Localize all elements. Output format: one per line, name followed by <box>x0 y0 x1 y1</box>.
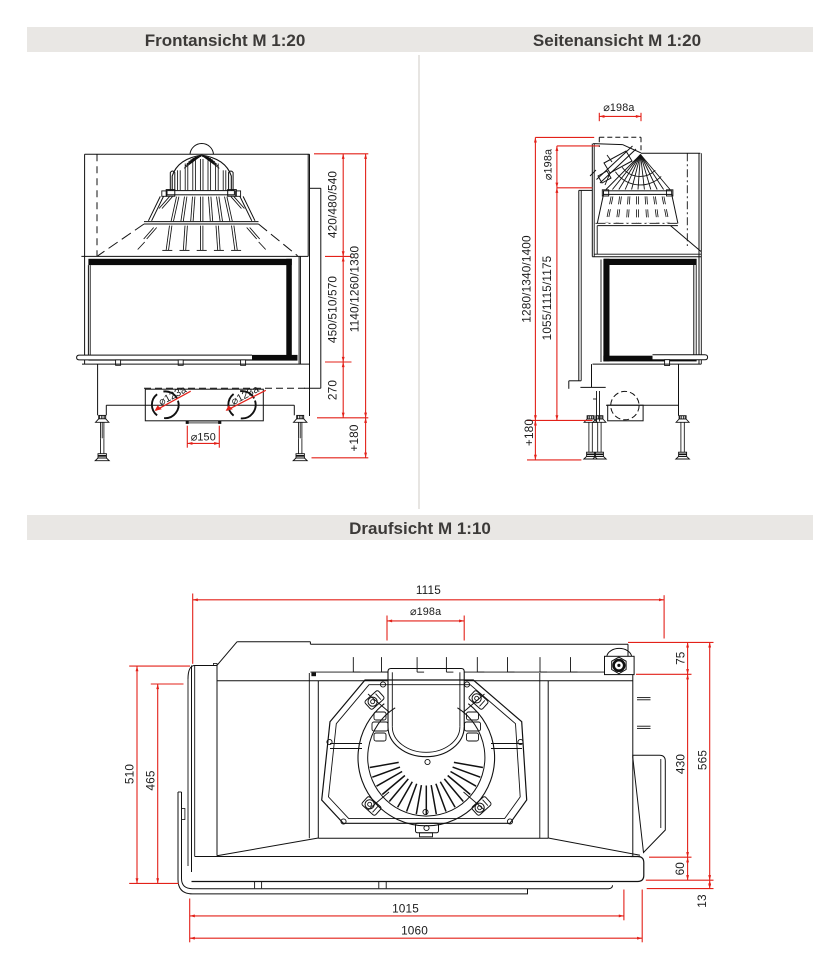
svg-text:1060: 1060 <box>401 924 428 938</box>
svg-text:+180: +180 <box>347 424 361 451</box>
svg-text:⌀198a: ⌀198a <box>603 102 634 114</box>
svg-text:565: 565 <box>696 750 710 770</box>
svg-text:60: 60 <box>673 862 687 876</box>
svg-text:420/480/540: 420/480/540 <box>326 171 340 239</box>
svg-text:1115: 1115 <box>416 583 441 597</box>
svg-text:510: 510 <box>123 764 137 784</box>
svg-text:+180: +180 <box>522 419 536 446</box>
svg-text:75: 75 <box>673 651 687 665</box>
svg-text:1015: 1015 <box>392 901 419 915</box>
svg-text:270: 270 <box>326 380 340 400</box>
svg-text:1140/1260/1380: 1140/1260/1380 <box>348 245 362 332</box>
svg-text:13: 13 <box>695 894 709 908</box>
svg-text:1280/1340/1400: 1280/1340/1400 <box>520 235 534 323</box>
svg-text:⌀150: ⌀150 <box>191 431 216 443</box>
svg-text:1055/1115/1175: 1055/1115/1175 <box>540 255 554 340</box>
svg-text:⌀123a: ⌀123a <box>157 384 189 409</box>
svg-text:465: 465 <box>143 770 157 790</box>
svg-text:430: 430 <box>673 754 687 774</box>
svg-text:⌀198a: ⌀198a <box>543 149 555 180</box>
svg-text:⌀198a: ⌀198a <box>410 606 441 618</box>
svg-text:450/510/570: 450/510/570 <box>326 276 340 344</box>
